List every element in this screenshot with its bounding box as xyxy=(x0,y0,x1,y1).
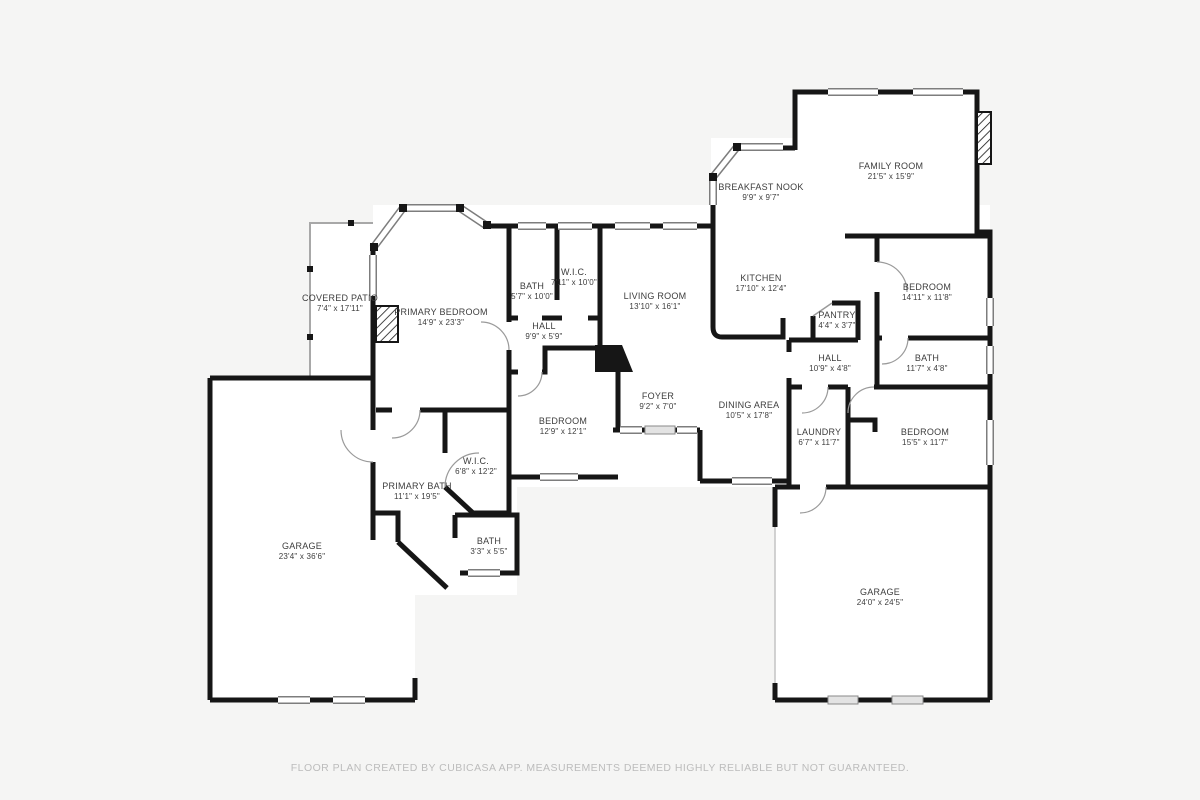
floorplan-page: { "page": { "title": "Residential Floor … xyxy=(0,0,1200,800)
floorplan-drawing xyxy=(0,0,1200,800)
footer-disclaimer: FLOOR PLAN CREATED BY CUBICASA APP. MEAS… xyxy=(0,762,1200,774)
floor-areas xyxy=(210,92,990,700)
